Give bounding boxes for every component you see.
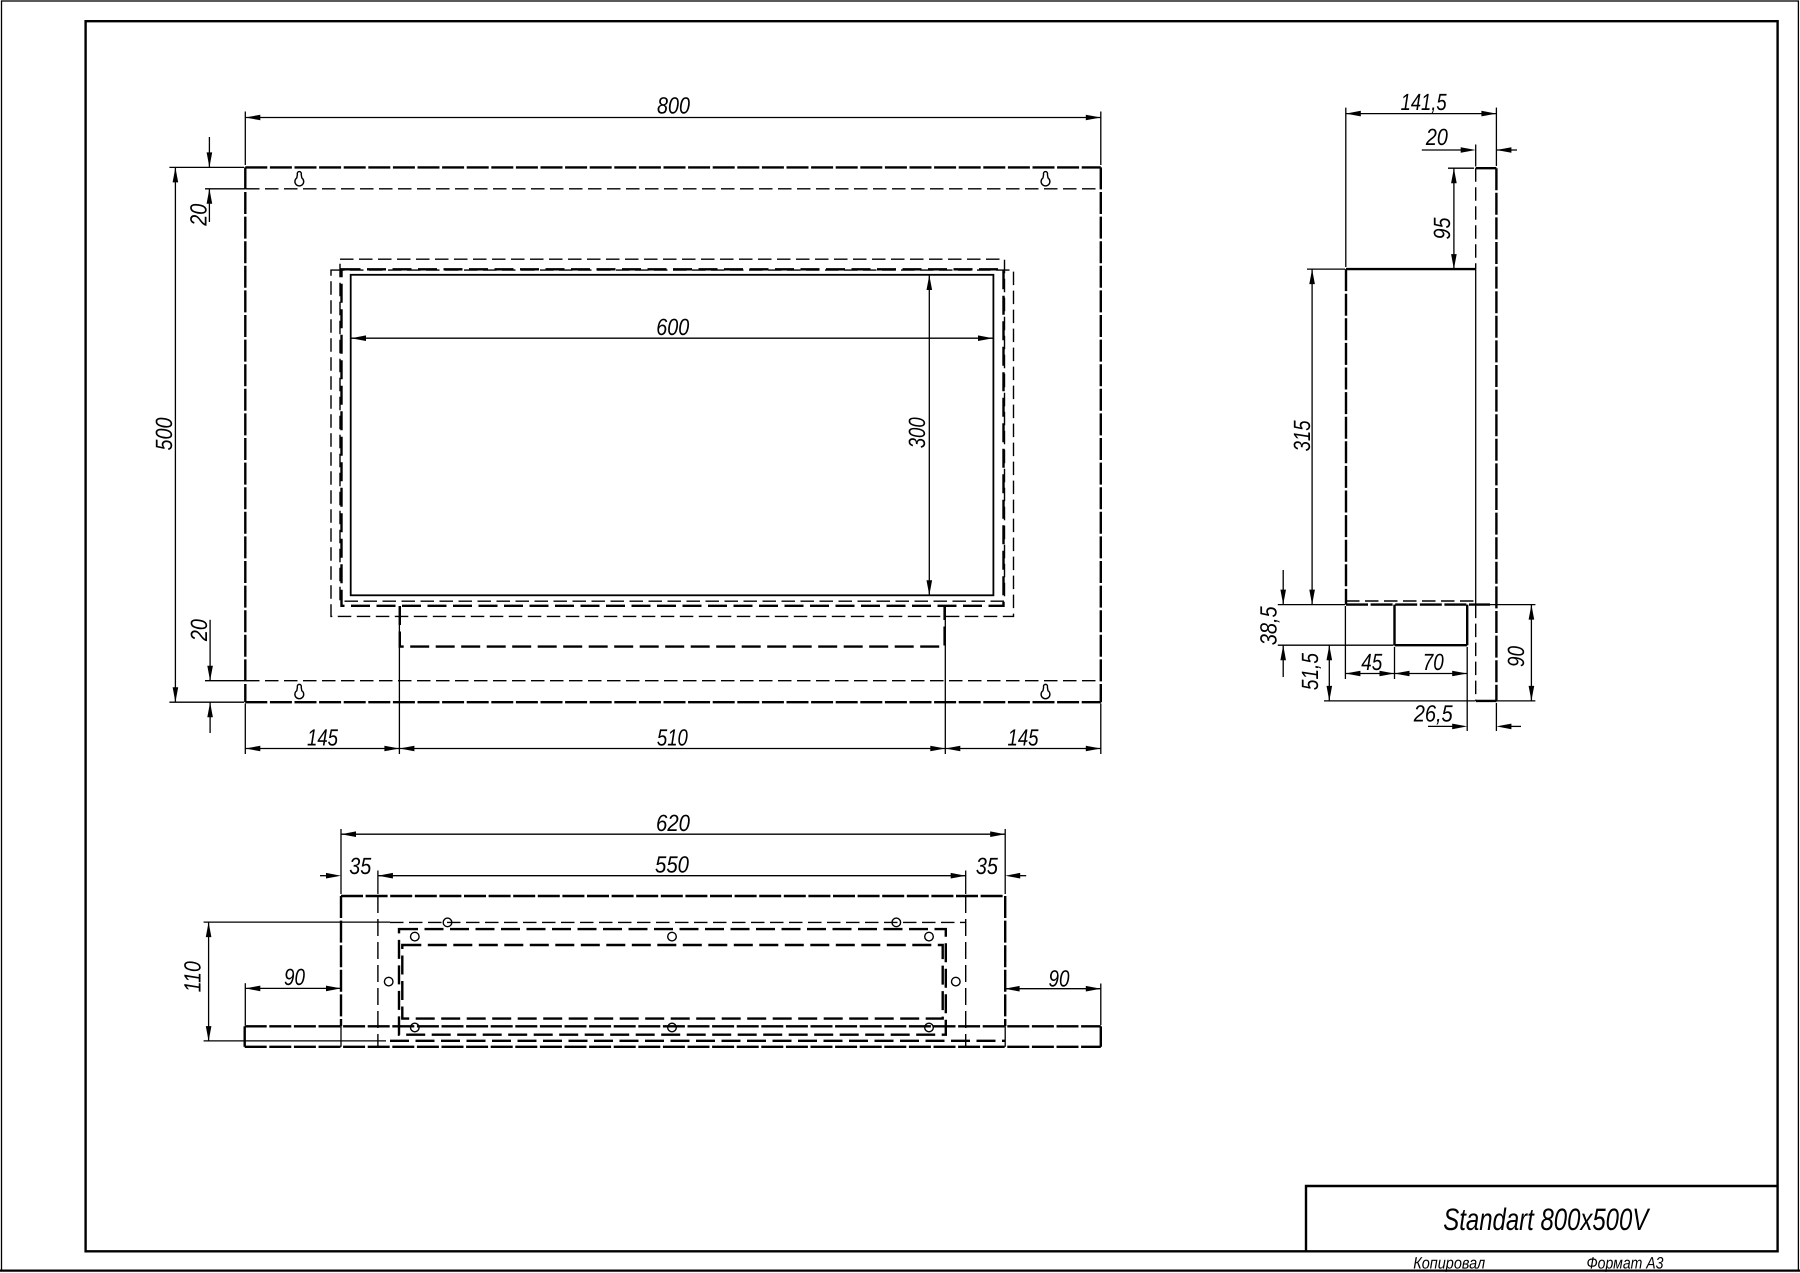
svg-text:45: 45: [1361, 649, 1383, 675]
svg-text:90: 90: [1503, 646, 1529, 667]
svg-text:38,5: 38,5: [1255, 606, 1281, 646]
svg-text:95: 95: [1429, 217, 1455, 240]
svg-text:51,5: 51,5: [1297, 652, 1323, 690]
svg-text:20: 20: [186, 619, 212, 642]
svg-text:141,5: 141,5: [1401, 89, 1448, 115]
svg-text:90: 90: [1049, 965, 1070, 991]
svg-text:620: 620: [656, 810, 690, 836]
svg-text:800: 800: [657, 93, 690, 119]
svg-text:90: 90: [284, 964, 305, 990]
svg-text:Формат А3: Формат А3: [1587, 1255, 1665, 1273]
svg-text:550: 550: [655, 852, 689, 878]
svg-text:600: 600: [656, 314, 689, 340]
svg-text:20: 20: [1425, 124, 1448, 150]
svg-text:510: 510: [657, 724, 688, 750]
svg-text:500: 500: [151, 418, 177, 451]
svg-text:35: 35: [349, 853, 372, 879]
svg-text:110: 110: [180, 961, 206, 992]
svg-text:145: 145: [1008, 724, 1040, 750]
svg-text:20: 20: [186, 204, 212, 227]
svg-text:300: 300: [904, 417, 930, 448]
svg-text:26,5: 26,5: [1413, 701, 1454, 727]
svg-text:Копировал: Копировал: [1413, 1255, 1485, 1273]
svg-text:70: 70: [1423, 649, 1444, 675]
svg-text:315: 315: [1289, 420, 1315, 452]
svg-text:35: 35: [976, 853, 999, 879]
svg-text:145: 145: [307, 724, 339, 750]
svg-text:Standart 800x500V: Standart 800x500V: [1443, 1202, 1651, 1237]
